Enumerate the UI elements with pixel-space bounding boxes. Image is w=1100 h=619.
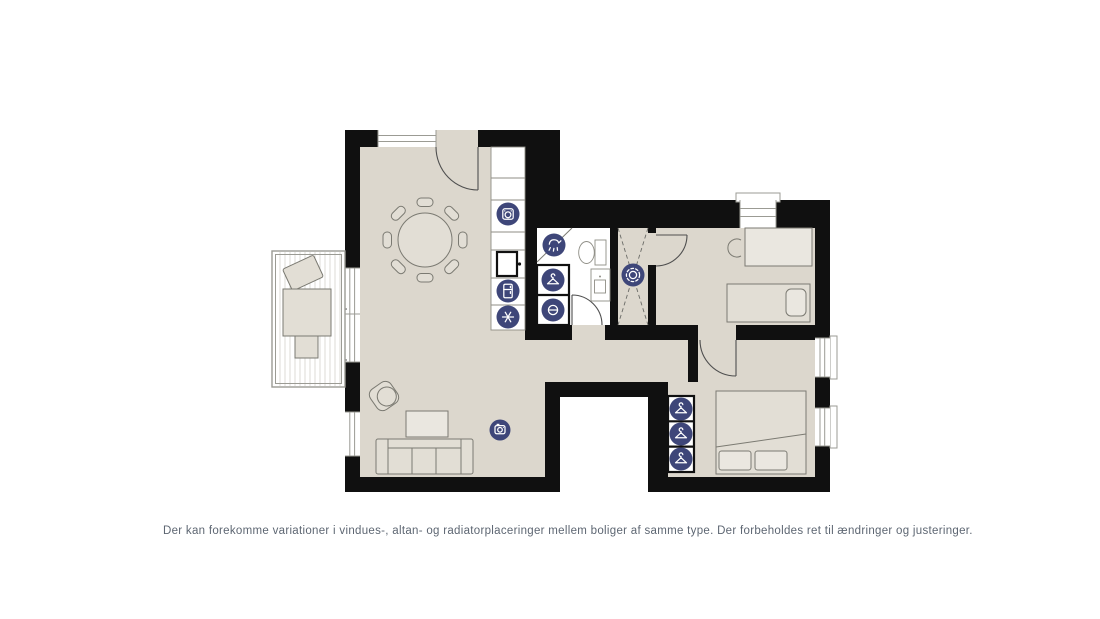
wardrobe-icon [670, 398, 693, 421]
wardrobe-icon [670, 423, 693, 446]
disclaimer-text: Der kan forekomme variationer i vindues-… [163, 525, 983, 537]
hallway-floor [525, 340, 688, 382]
kitchen-counter [491, 147, 525, 330]
window-living-left [345, 412, 360, 456]
bedroom1-doorway [648, 233, 656, 265]
bedroom2-floor-upper [698, 340, 815, 382]
pillow [755, 451, 787, 470]
window-bedroom2-right-1 [815, 336, 837, 379]
kitchen [491, 147, 525, 330]
pillow [719, 451, 751, 470]
oven-icon [497, 203, 520, 226]
double-bed [716, 391, 806, 474]
window-bedroom1-top [736, 193, 780, 228]
freezer-icon [497, 306, 520, 329]
wardrobe-icon [670, 448, 693, 471]
ventilation-icon [622, 264, 645, 287]
washing-machine-icon [542, 299, 565, 322]
balcony [272, 251, 345, 387]
balcony-glass-door [345, 268, 360, 362]
sofa [376, 439, 473, 474]
bathroom-doorway [572, 325, 605, 340]
coffee-table [406, 411, 448, 437]
dishwasher-front [497, 252, 521, 276]
bedroom2-doorway [698, 325, 736, 340]
window-living-top [378, 130, 436, 147]
desk [745, 228, 812, 266]
single-bed [727, 284, 810, 322]
sink [591, 269, 610, 301]
camera-icon [490, 420, 511, 441]
pillow [786, 289, 806, 316]
fridge-icon [497, 280, 520, 303]
balcony-table [283, 289, 331, 336]
balcony-stool [295, 336, 318, 358]
wardrobe-icon [542, 269, 565, 292]
shower-icon [543, 234, 566, 257]
bedroom-2 [668, 391, 806, 474]
entry-doorway [436, 130, 478, 147]
dining-table [398, 213, 452, 267]
window-bedroom2-right-2 [815, 406, 837, 448]
floor-plan-page: Der kan forekomme variationer i vindues-… [0, 0, 1100, 619]
